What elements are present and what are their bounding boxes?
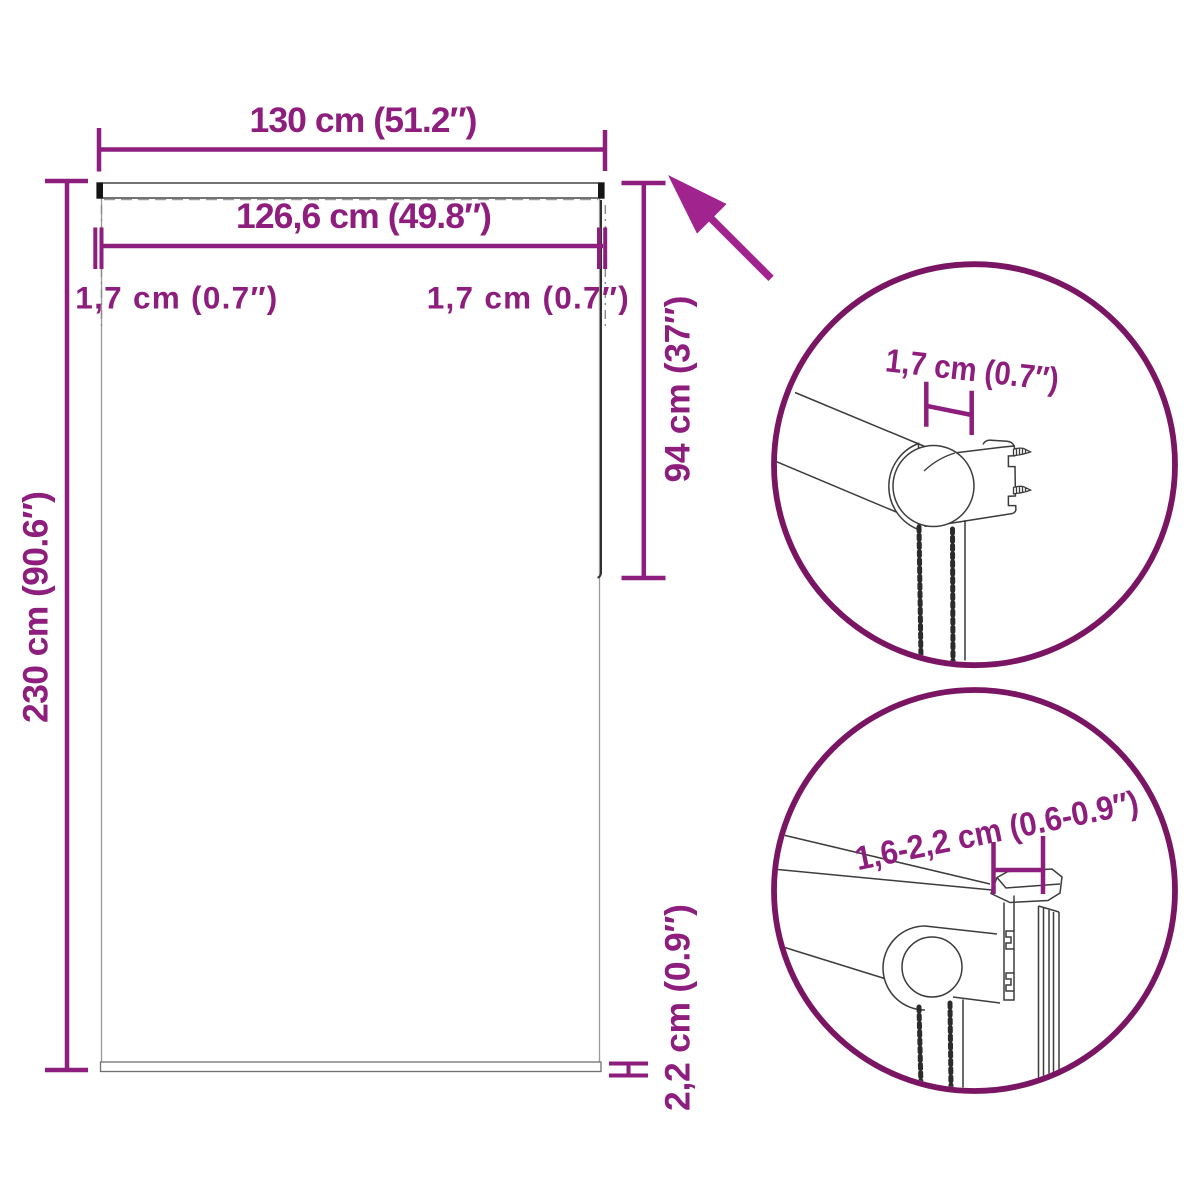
svg-text:230 cm (90.6″): 230 cm (90.6″) — [16, 491, 56, 723]
svg-text:94 cm (37″): 94 cm (37″) — [658, 296, 698, 483]
svg-text:1,7 cm (0.7″): 1,7 cm (0.7″) — [75, 280, 277, 316]
svg-text:130 cm (51.2″): 130 cm (51.2″) — [250, 100, 478, 140]
svg-text:2,2 cm (0.9″): 2,2 cm (0.9″) — [658, 904, 698, 1111]
svg-text:1,7 cm (0.7″): 1,7 cm (0.7″) — [427, 280, 629, 316]
svg-text:126,6 cm (49.8″): 126,6 cm (49.8″) — [236, 196, 492, 236]
